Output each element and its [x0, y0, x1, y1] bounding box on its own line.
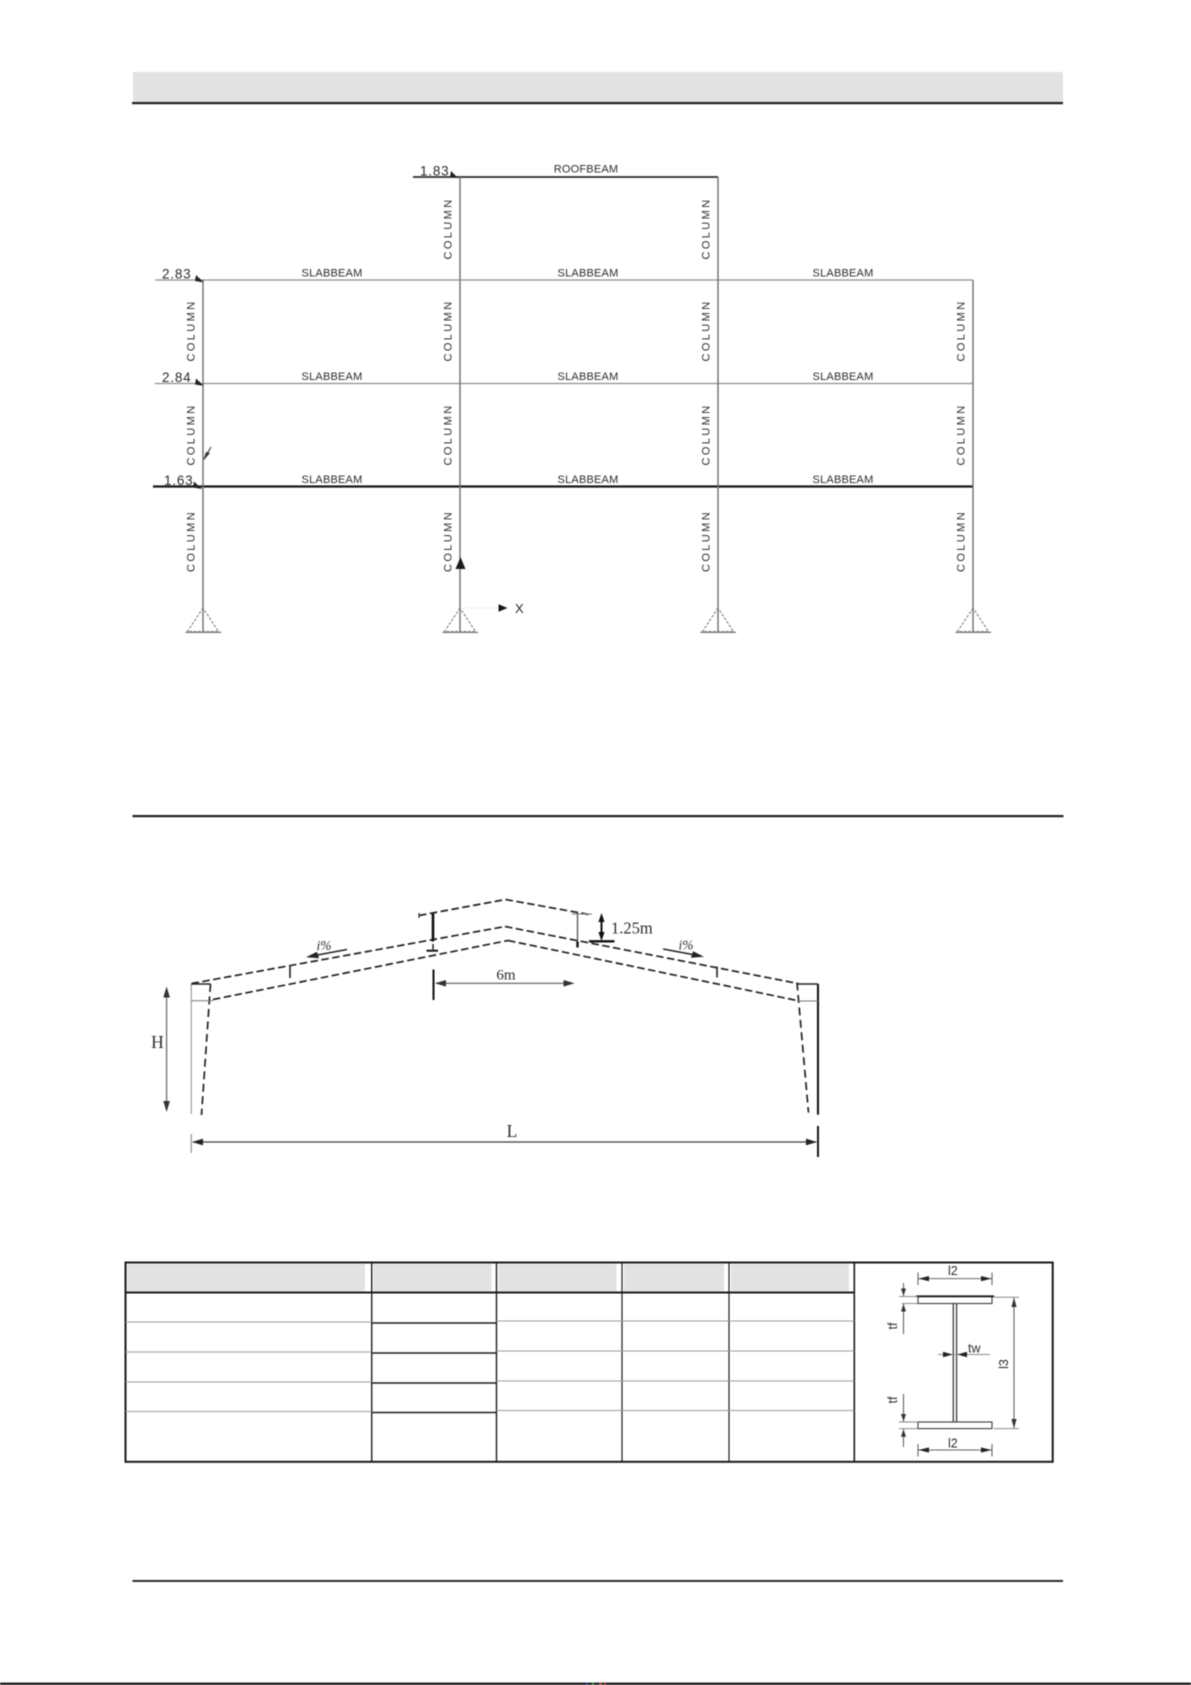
- svg-text:COLUMN: COLUMN: [186, 510, 198, 572]
- svg-text:COLUMN: COLUMN: [443, 510, 455, 572]
- svg-text:COLUMN: COLUMN: [956, 510, 968, 572]
- svg-text:1.25m: 1.25m: [611, 919, 653, 938]
- svg-text:l2: l2: [948, 1437, 958, 1451]
- svg-text:l3: l3: [997, 1359, 1011, 1369]
- svg-text:X: X: [515, 601, 524, 616]
- svg-text:H: H: [151, 1032, 164, 1052]
- svg-text:SLABBEAM: SLABBEAM: [813, 371, 874, 383]
- svg-text:tf: tf: [886, 1396, 900, 1403]
- svg-text:COLUMN: COLUMN: [186, 299, 198, 361]
- svg-text:SLABBEAM: SLABBEAM: [558, 268, 619, 280]
- svg-text:COLUMN: COLUMN: [701, 403, 713, 465]
- svg-text:SLABBEAM: SLABBEAM: [558, 371, 619, 383]
- svg-text:COLUMN: COLUMN: [186, 403, 198, 465]
- svg-text:tf: tf: [886, 1322, 900, 1329]
- svg-text:2.83: 2.83: [162, 267, 191, 282]
- svg-text:SLABBEAM: SLABBEAM: [813, 268, 874, 280]
- svg-text:SLABBEAM: SLABBEAM: [302, 474, 363, 486]
- svg-text:tw: tw: [968, 1342, 981, 1356]
- svg-text:COLUMN: COLUMN: [443, 403, 455, 465]
- svg-text:SLABBEAM: SLABBEAM: [302, 268, 363, 280]
- svg-text:6m: 6m: [496, 968, 516, 984]
- svg-text:1.63: 1.63: [164, 473, 193, 488]
- svg-text:SLABBEAM: SLABBEAM: [813, 474, 874, 486]
- svg-text:COLUMN: COLUMN: [956, 299, 968, 361]
- svg-text:1.83: 1.83: [420, 164, 449, 179]
- svg-text:COLUMN: COLUMN: [701, 299, 713, 361]
- svg-text:COLUMN: COLUMN: [701, 510, 713, 572]
- svg-text:SLABBEAM: SLABBEAM: [558, 474, 619, 486]
- svg-text:i%: i%: [317, 938, 332, 953]
- svg-text:l2: l2: [948, 1264, 958, 1278]
- svg-text:2.84: 2.84: [162, 370, 191, 385]
- svg-text:COLUMN: COLUMN: [701, 197, 713, 259]
- svg-text:COLUMN: COLUMN: [956, 403, 968, 465]
- svg-text:SLABBEAM: SLABBEAM: [302, 371, 363, 383]
- svg-text:ROOFBEAM: ROOFBEAM: [554, 164, 619, 176]
- svg-text:COLUMN: COLUMN: [443, 299, 455, 361]
- svg-text:L: L: [507, 1121, 518, 1141]
- svg-text:COLUMN: COLUMN: [443, 197, 455, 259]
- svg-text:i%: i%: [679, 938, 694, 953]
